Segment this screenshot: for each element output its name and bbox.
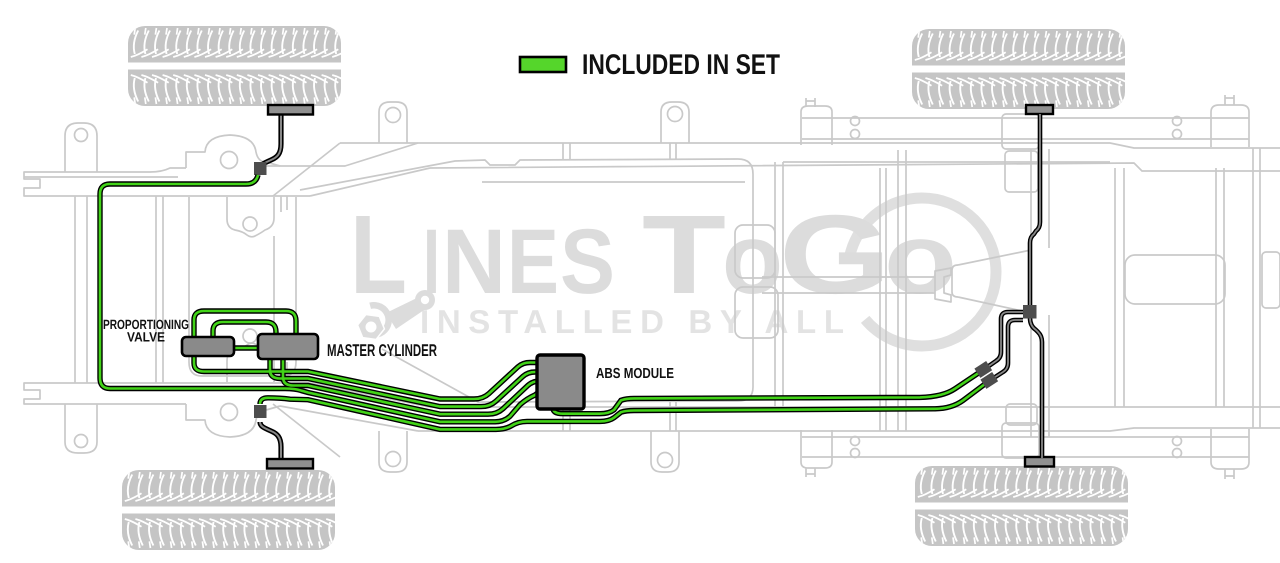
svg-text:L: L [350, 192, 407, 317]
svg-text:INCLUDED IN SET: INCLUDED IN SET [582, 49, 780, 81]
svg-text:MASTER CYLINDER: MASTER CYLINDER [327, 341, 437, 360]
svg-text:S: S [560, 211, 615, 313]
svg-text:INSTALLED BY ALL: INSTALLED BY ALL [420, 303, 844, 340]
svg-text:E: E [507, 211, 559, 313]
svg-text:T: T [642, 192, 726, 317]
svg-text:N: N [442, 211, 506, 313]
svg-text:ABS MODULE: ABS MODULE [596, 366, 674, 382]
svg-text:o: o [884, 203, 957, 315]
svg-text:G: G [779, 192, 891, 317]
svg-text:VALVE: VALVE [127, 330, 165, 345]
